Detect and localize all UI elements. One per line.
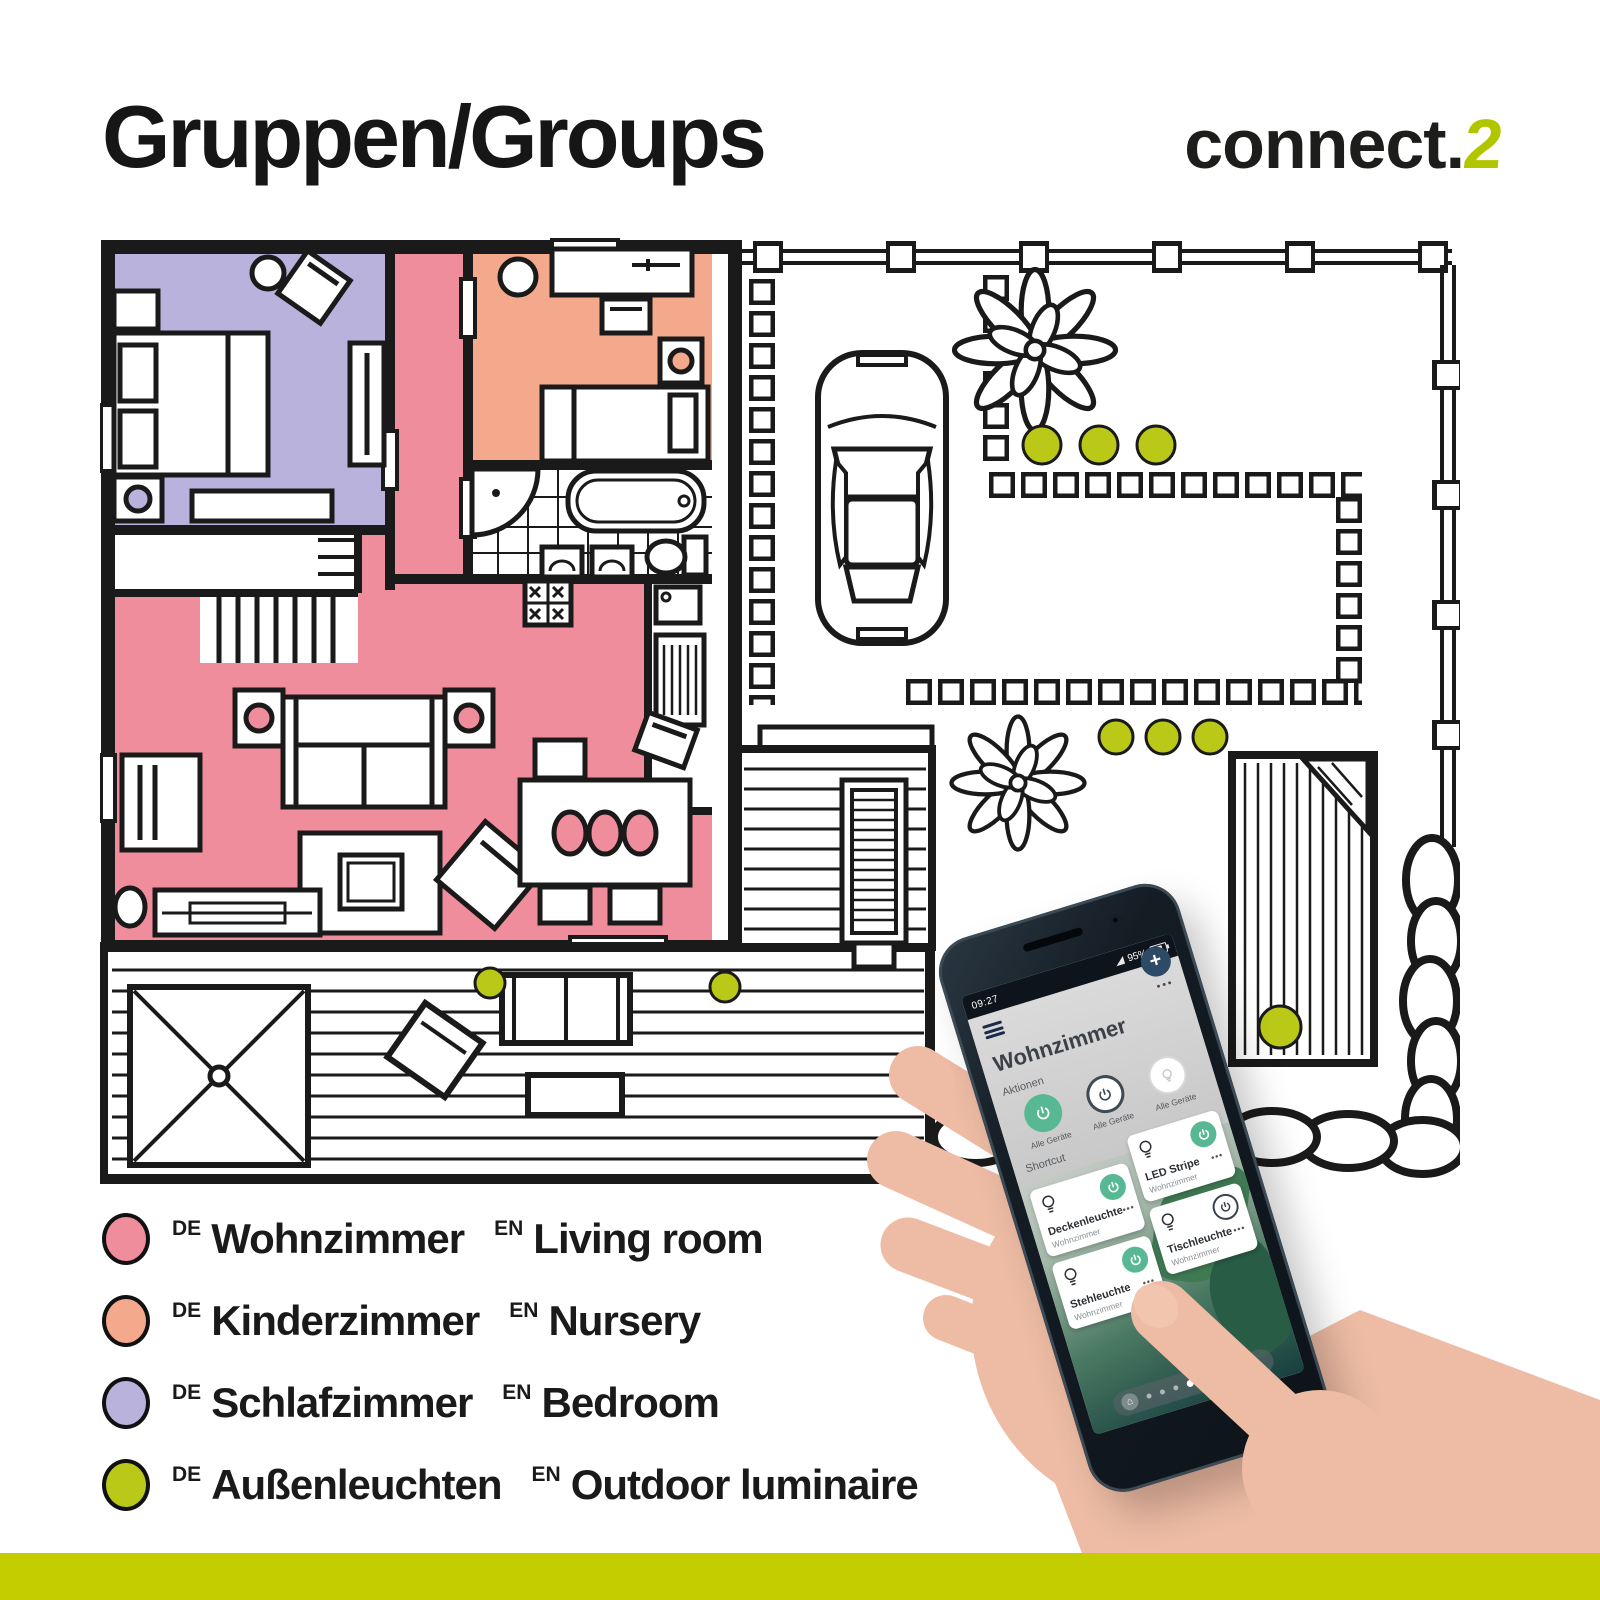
brand-logo-accent: 2 [1460, 104, 1506, 184]
brand-logo-text: connect. [1184, 105, 1464, 183]
lamp-icon[interactable] [1144, 1051, 1191, 1098]
brand-logo: connect.2 [1184, 104, 1502, 184]
legend-en-tag: EN [502, 1381, 531, 1405]
legend-row-bedroom: DE Schlafzimmer EN Bedroom [102, 1362, 918, 1444]
legend-en-name: Living room [533, 1215, 762, 1263]
plant-pot [115, 888, 145, 926]
action-label: Alle Geräte [1092, 1110, 1136, 1132]
power-toggle[interactable] [1187, 1118, 1219, 1150]
menu-icon[interactable] [982, 1020, 1005, 1039]
status-time: 09:27 [970, 993, 1000, 1012]
legend-de-name: Kinderzimmer [211, 1297, 479, 1345]
footer-bar [0, 1553, 1600, 1600]
outdoor-table [528, 1075, 622, 1115]
legend-en-tag: EN [494, 1217, 523, 1241]
outdoor-light-dot [475, 968, 505, 998]
overflow-menu[interactable]: ••• [1155, 977, 1175, 994]
legend-de-tag: DE [172, 1299, 201, 1323]
legend-de-name: Wohnzimmer [211, 1215, 464, 1263]
legend-de-tag: DE [172, 1463, 201, 1487]
bulb-icon [1037, 1191, 1061, 1217]
power-toggle[interactable] [1209, 1191, 1241, 1223]
legend-en-name: Outdoor luminaire [571, 1461, 918, 1509]
legend: DE Wohnzimmer EN Living room DE Kinderzi… [102, 1198, 918, 1526]
legend-en-tag: EN [532, 1463, 561, 1487]
bulb-icon [1060, 1264, 1084, 1290]
legend-swatch-salmon [102, 1295, 150, 1347]
legend-de-name: Außenleuchten [211, 1461, 501, 1509]
card-overflow[interactable]: ••• [1210, 1150, 1225, 1163]
camera-dot [1109, 913, 1123, 927]
legend-en-name: Bedroom [541, 1379, 718, 1427]
desk [552, 249, 692, 295]
power-toggle[interactable] [1119, 1243, 1151, 1275]
action-all-lamp[interactable]: Alle Geräte [1131, 1047, 1209, 1116]
card-overflow[interactable]: ••• [1121, 1202, 1136, 1215]
armchair [122, 755, 200, 850]
legend-de-name: Schlafzimmer [211, 1379, 472, 1427]
bottom-nav[interactable]: ⌂ [1111, 1346, 1277, 1418]
dining-chair [535, 740, 585, 778]
bench [192, 491, 332, 521]
legend-swatch-pink [102, 1213, 150, 1265]
legend-swatch-lime [102, 1459, 150, 1511]
power-off-icon[interactable] [1082, 1070, 1129, 1117]
legend-de-tag: DE [172, 1381, 201, 1405]
signal-icon [1114, 956, 1125, 966]
legend-swatch-lavender [102, 1377, 150, 1429]
outdoor-light-dot [710, 972, 740, 1002]
desk-chair [602, 299, 650, 333]
power-toggle[interactable] [1097, 1171, 1129, 1203]
dining-chair [610, 887, 660, 923]
side-table [252, 257, 284, 289]
legend-de-tag: DE [172, 1217, 201, 1241]
nightstand [114, 291, 158, 329]
speaker-slit [1022, 927, 1084, 953]
kitchen-sink [656, 587, 700, 623]
page-title: Gruppen/Groups [102, 86, 764, 188]
action-label: Alle Geräte [1154, 1091, 1198, 1113]
car [818, 353, 946, 643]
legend-row-living: DE Wohnzimmer EN Living room [102, 1198, 918, 1280]
power-on-icon[interactable] [1019, 1089, 1066, 1136]
card-overflow[interactable]: ••• [1141, 1275, 1156, 1288]
legend-row-outdoor: DE Außenleuchten EN Outdoor luminaire [102, 1444, 918, 1526]
bulb-icon [1135, 1136, 1159, 1162]
card-overflow[interactable]: ••• [1232, 1222, 1247, 1235]
legend-en-name: Nursery [548, 1297, 700, 1345]
stool [500, 259, 536, 295]
legend-row-nursery: DE Kinderzimmer EN Nursery [102, 1280, 918, 1362]
legend-en-tag: EN [509, 1299, 538, 1323]
home-icon[interactable]: ⌂ [1119, 1391, 1140, 1412]
bulb-icon [1157, 1209, 1181, 1235]
action-label: Alle Geräte [1029, 1129, 1073, 1151]
dining-chair [540, 887, 590, 923]
